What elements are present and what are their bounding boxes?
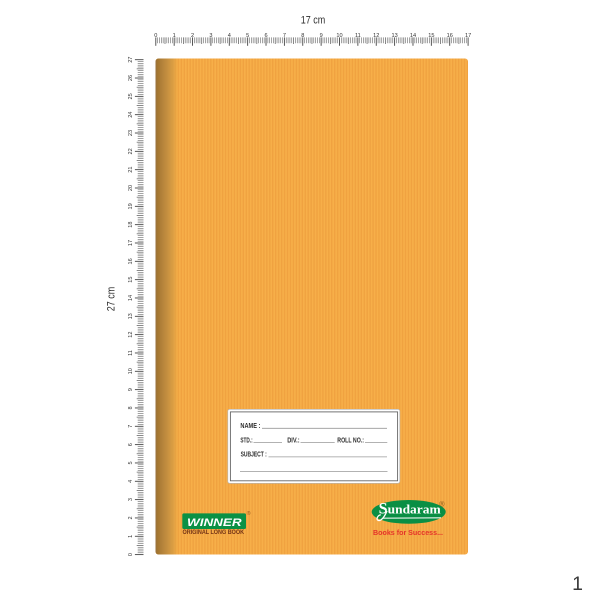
svg-text:19: 19 [128,203,134,209]
svg-text:4: 4 [228,33,231,39]
svg-text:27 cm: 27 cm [106,287,118,312]
svg-text:Books for Success...: Books for Success... [373,528,443,537]
svg-text:23: 23 [128,130,134,136]
svg-text:7: 7 [128,425,134,428]
svg-text:®: ® [439,499,445,508]
svg-text:20: 20 [128,185,134,191]
svg-text:22: 22 [128,148,134,154]
svg-text:18: 18 [128,222,134,228]
svg-text:7: 7 [283,33,286,39]
svg-text:1: 1 [572,573,583,595]
svg-text:10: 10 [336,33,342,39]
svg-text:Sundaram: Sundaram [379,501,441,518]
svg-text:21: 21 [128,167,134,173]
svg-text:8: 8 [128,406,134,409]
svg-text:27: 27 [128,57,134,63]
svg-text:4: 4 [128,480,134,483]
svg-text:SUBJECT :: SUBJECT : [241,450,267,459]
svg-text:10: 10 [128,368,134,374]
svg-text:9: 9 [320,33,323,39]
svg-text:NAME :: NAME : [240,421,260,430]
svg-text:11: 11 [355,33,361,39]
svg-text:15: 15 [128,277,134,283]
svg-text:WINNER: WINNER [187,517,242,529]
svg-text:25: 25 [128,93,134,99]
svg-text:3: 3 [209,33,212,39]
svg-text:9: 9 [128,388,134,391]
svg-text:13: 13 [128,313,134,319]
svg-text:ORIGINAL LONG BOOK: ORIGINAL LONG BOOK [183,529,245,536]
svg-text:STD.:: STD.: [240,435,252,444]
svg-text:17: 17 [465,33,471,39]
svg-text:16: 16 [128,258,134,264]
svg-text:8: 8 [301,33,304,39]
svg-text:2: 2 [191,33,194,39]
svg-text:DIV.:: DIV.: [287,435,299,444]
svg-text:6: 6 [128,443,134,446]
svg-text:6: 6 [264,33,267,39]
svg-text:1: 1 [128,535,134,538]
svg-text:®: ® [247,510,251,517]
svg-text:1: 1 [173,33,176,39]
svg-text:5: 5 [246,33,249,39]
svg-text:15: 15 [428,33,434,39]
svg-text:ROLL NO.:: ROLL NO.: [337,435,364,444]
svg-text:0: 0 [128,553,134,556]
svg-text:14: 14 [128,295,134,301]
svg-text:17 cm: 17 cm [301,15,326,27]
svg-text:16: 16 [447,33,453,39]
svg-text:5: 5 [128,461,134,464]
svg-text:3: 3 [128,498,134,501]
svg-text:26: 26 [128,75,134,81]
svg-text:0: 0 [154,33,157,39]
svg-text:13: 13 [391,33,397,39]
svg-text:14: 14 [410,33,416,39]
svg-text:12: 12 [373,33,379,39]
svg-text:17: 17 [128,240,134,246]
svg-text:11: 11 [128,350,134,356]
svg-text:24: 24 [128,112,134,118]
svg-text:2: 2 [128,516,134,519]
svg-text:12: 12 [128,332,134,338]
